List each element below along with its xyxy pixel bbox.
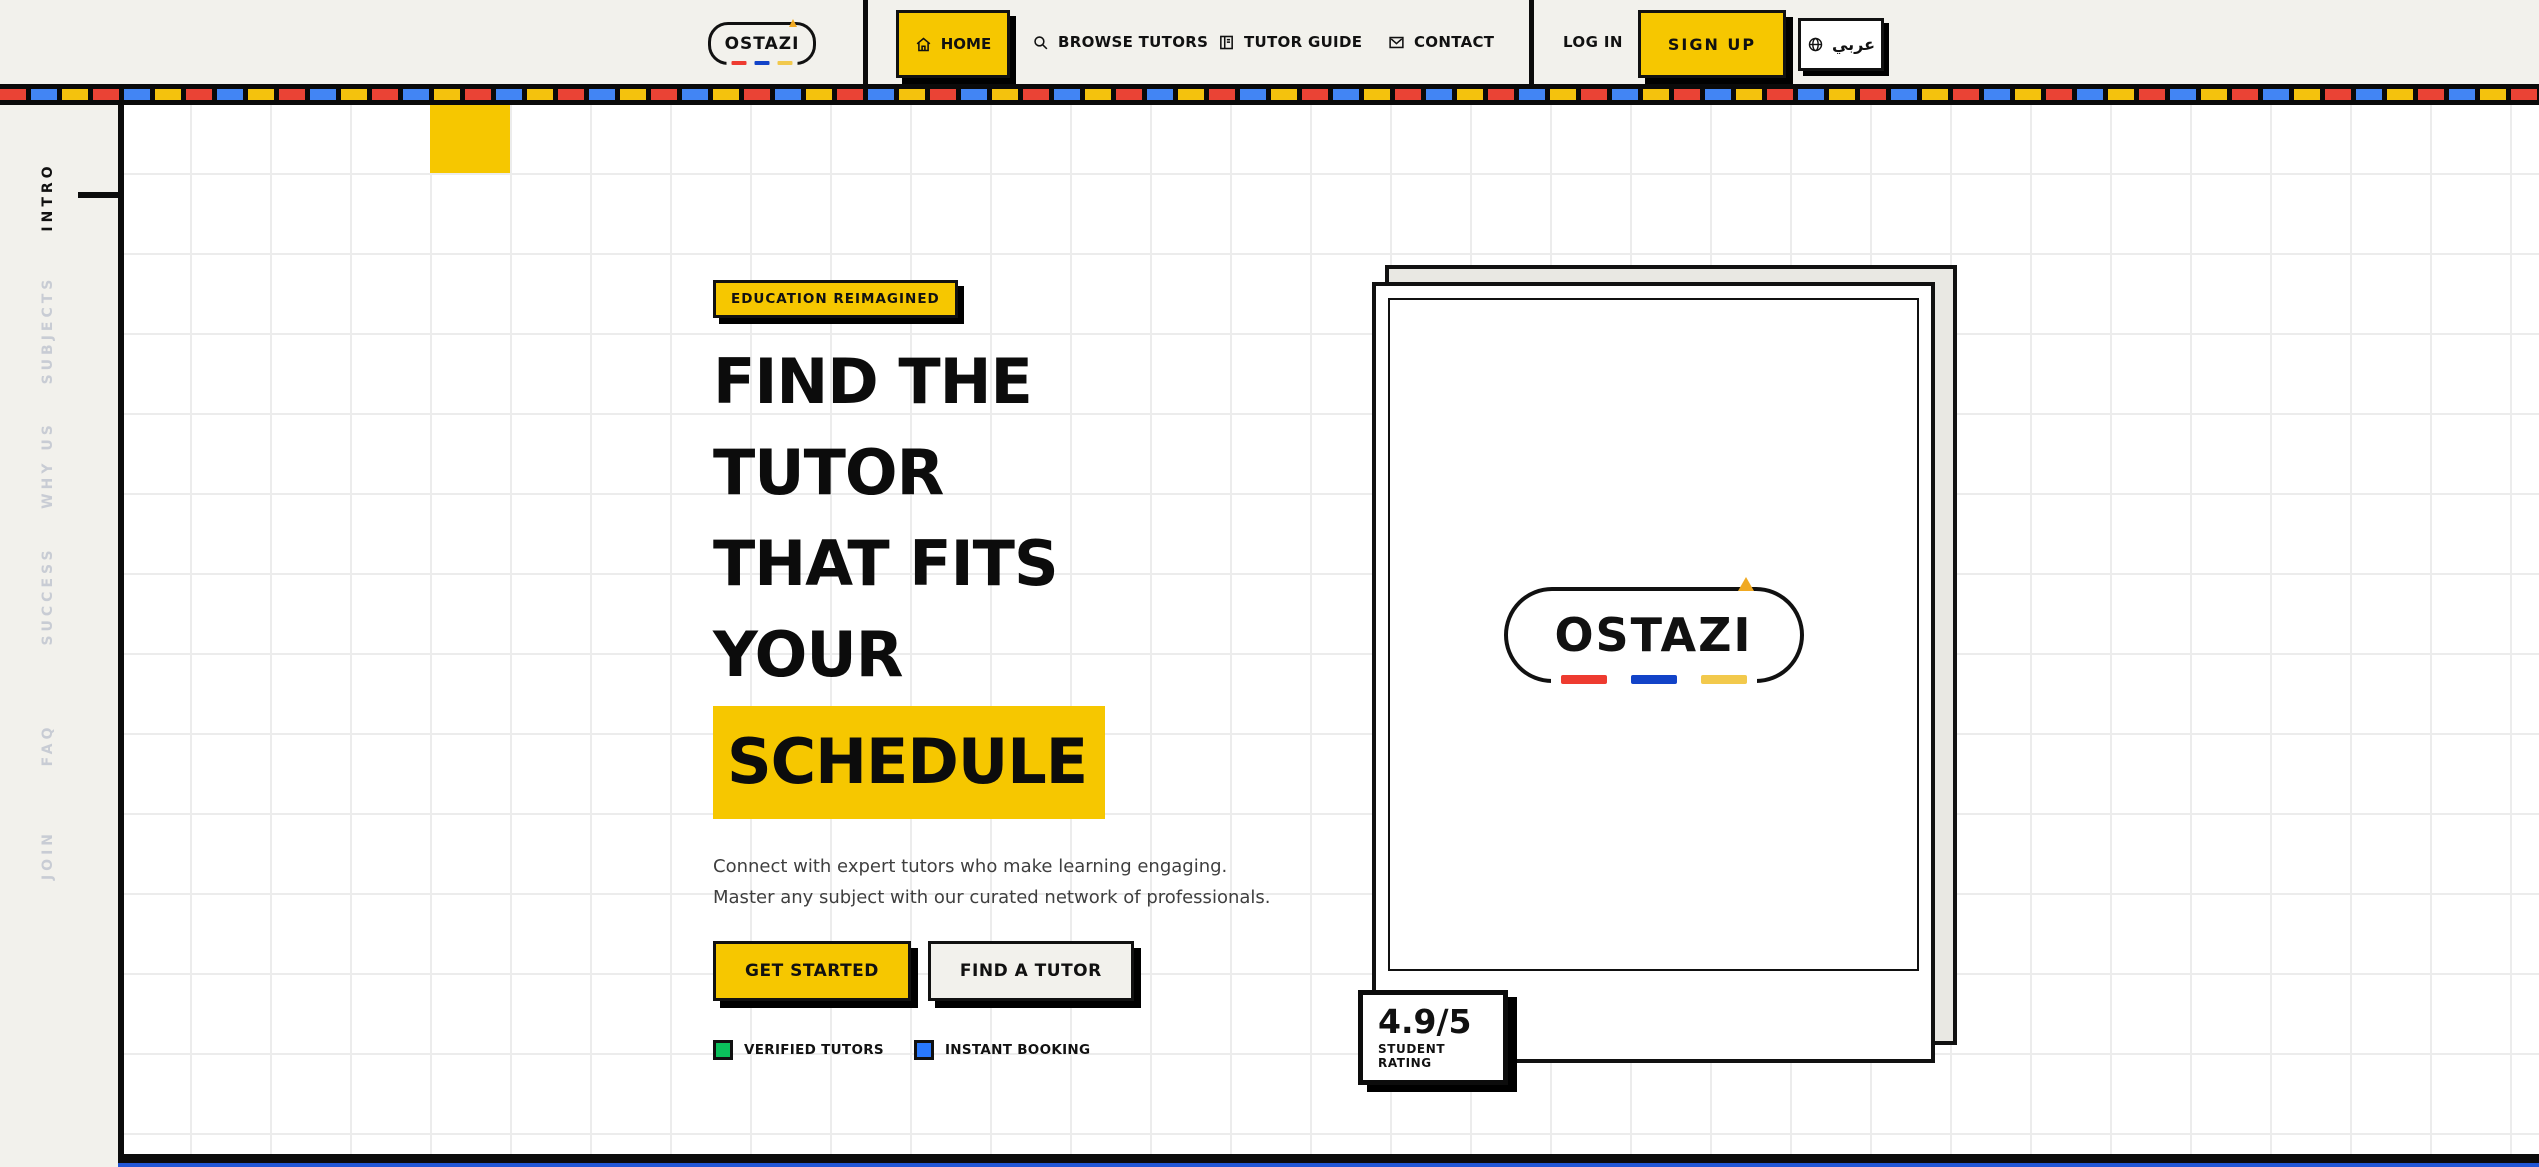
logo-underline-dashes — [1551, 673, 1757, 686]
rail-item-intro[interactable]: INTRO — [40, 162, 56, 231]
logo-dash-blue-icon — [755, 61, 770, 65]
legend-instant-booking: INSTANT BOOKING — [914, 1040, 1090, 1060]
stripe-pattern — [0, 89, 2539, 100]
log-in-button[interactable]: LOG IN — [1563, 0, 1623, 84]
language-toggle-button[interactable]: عربي — [1798, 18, 1884, 71]
logo-dash-yellow-icon — [1701, 675, 1747, 684]
nav-divider-right — [1529, 0, 1534, 84]
legend-label: INSTANT BOOKING — [945, 1042, 1090, 1058]
rating-badge: 4.9/5 STUDENT RATING — [1358, 990, 1508, 1085]
globe-icon — [1807, 36, 1824, 53]
top-nav: OSTAZI HOME BROWSE TUTORS — [0, 0, 2539, 84]
hero-section — [124, 105, 2539, 1167]
logo-dash-yellow-icon — [778, 61, 793, 65]
home-icon — [915, 36, 932, 53]
legend-verified-tutors: VERIFIED TUTORS — [713, 1040, 884, 1060]
logo-dash-red-icon — [1561, 675, 1607, 684]
nav-item-browse-tutors[interactable]: BROWSE TUTORS — [1032, 0, 1208, 84]
verified-swatch-icon — [713, 1040, 733, 1060]
hero-description: Connect with expert tutors who make lear… — [713, 851, 1271, 913]
nav-item-home[interactable]: HOME — [896, 10, 1010, 78]
description-line-1: Connect with expert tutors who make lear… — [713, 851, 1271, 882]
nav-item-label: TUTOR GUIDE — [1244, 33, 1362, 51]
rating-label: STUDENT RATING — [1378, 1042, 1503, 1070]
nav-item-tutor-guide[interactable]: TUTOR GUIDE — [1218, 0, 1362, 84]
book-icon — [1218, 34, 1235, 51]
card-photo-frame: OSTAZI — [1388, 298, 1919, 971]
card-logo: OSTAZI — [1504, 587, 1804, 683]
card-logo-text: OSTAZI — [1554, 608, 1752, 662]
rail-item-why-us[interactable]: WHY US — [40, 421, 56, 509]
brand-logo[interactable]: OSTAZI — [708, 22, 816, 65]
hero-badge: EDUCATION REIMAGINED — [713, 280, 958, 318]
description-line-2: Master any subject with our curated netw… — [713, 882, 1271, 913]
logo-dash-red-icon — [732, 61, 747, 65]
landing-page: OSTAZI HOME BROWSE TUTORS — [0, 0, 2539, 1167]
bottom-border — [118, 1154, 2539, 1163]
nav-item-label: HOME — [941, 35, 991, 53]
rail-item-success[interactable]: SUCCESS — [40, 546, 56, 645]
booking-swatch-icon — [914, 1040, 934, 1060]
rail-item-subjects[interactable]: SUBJECTS — [40, 276, 56, 385]
headline-highlight: SCHEDULE — [713, 706, 1105, 819]
mail-icon — [1388, 34, 1405, 51]
tutor-card: OSTAZI — [1372, 282, 1935, 1063]
headline-line-2: TUTOR — [713, 427, 1105, 518]
bottom-blue-strip — [118, 1163, 2539, 1167]
rail-item-join[interactable]: JOIN — [40, 830, 56, 880]
brand-logo-text: OSTAZI — [725, 34, 800, 54]
legend-label: VERIFIED TUTORS — [744, 1042, 884, 1058]
nav-item-contact[interactable]: CONTACT — [1388, 0, 1494, 84]
logo-underline-dashes — [727, 60, 798, 66]
cta-row: GET STARTED FIND A TUTOR — [713, 941, 1134, 1001]
language-label: عربي — [1832, 35, 1875, 54]
pencil-tip-icon — [1738, 577, 1754, 591]
headline-line-1: FIND THE — [713, 336, 1105, 427]
active-section-indicator — [78, 192, 125, 198]
logo-dash-blue-icon — [1631, 675, 1677, 684]
deco-yellow-square — [430, 105, 510, 173]
nav-item-label: BROWSE TUTORS — [1058, 33, 1208, 51]
headline-line-4: YOUR — [713, 609, 1105, 700]
rail-item-faq[interactable]: FAQ — [40, 724, 56, 767]
section-rail: INTRO SUBJECTS WHY US SUCCESS FAQ JOIN — [0, 105, 124, 1167]
sign-up-button[interactable]: SIGN UP — [1638, 10, 1786, 78]
nav-divider-left — [863, 0, 868, 84]
headline-line-3: THAT FITS — [713, 518, 1105, 609]
hero-headline: FIND THE TUTOR THAT FITS YOUR SCHEDULE — [713, 336, 1105, 819]
get-started-button[interactable]: GET STARTED — [713, 941, 911, 1001]
search-icon — [1032, 34, 1049, 51]
stripe-divider — [0, 84, 2539, 105]
pencil-tip-icon — [789, 19, 797, 27]
find-a-tutor-button[interactable]: FIND A TUTOR — [928, 941, 1134, 1001]
feature-legend: VERIFIED TUTORS INSTANT BOOKING — [713, 1040, 1090, 1060]
rating-value: 4.9/5 — [1378, 1005, 1503, 1040]
nav-item-label: CONTACT — [1414, 33, 1494, 51]
